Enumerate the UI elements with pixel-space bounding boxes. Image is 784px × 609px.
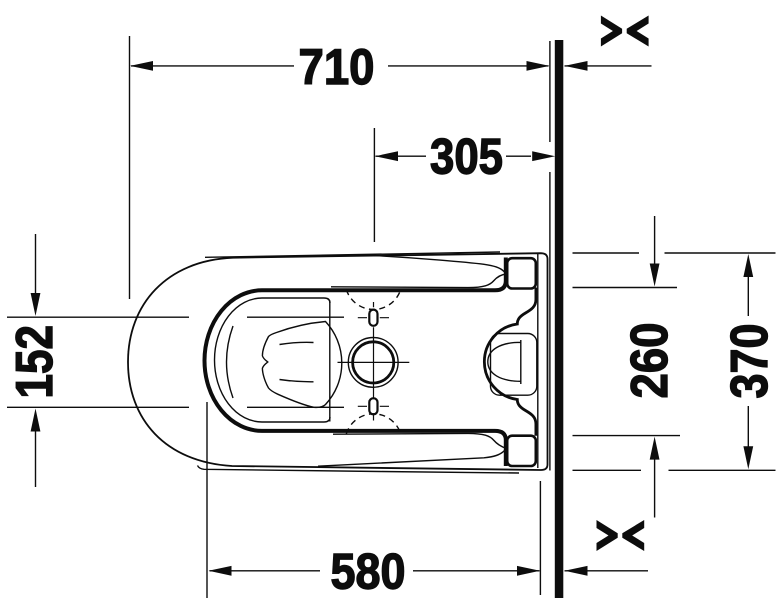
svg-text:305: 305 (430, 129, 503, 185)
svg-text:370: 370 (721, 324, 779, 399)
svg-text:710: 710 (299, 39, 375, 95)
svg-text:580: 580 (331, 544, 406, 600)
svg-text:260: 260 (621, 323, 679, 399)
svg-text:152: 152 (6, 325, 64, 399)
